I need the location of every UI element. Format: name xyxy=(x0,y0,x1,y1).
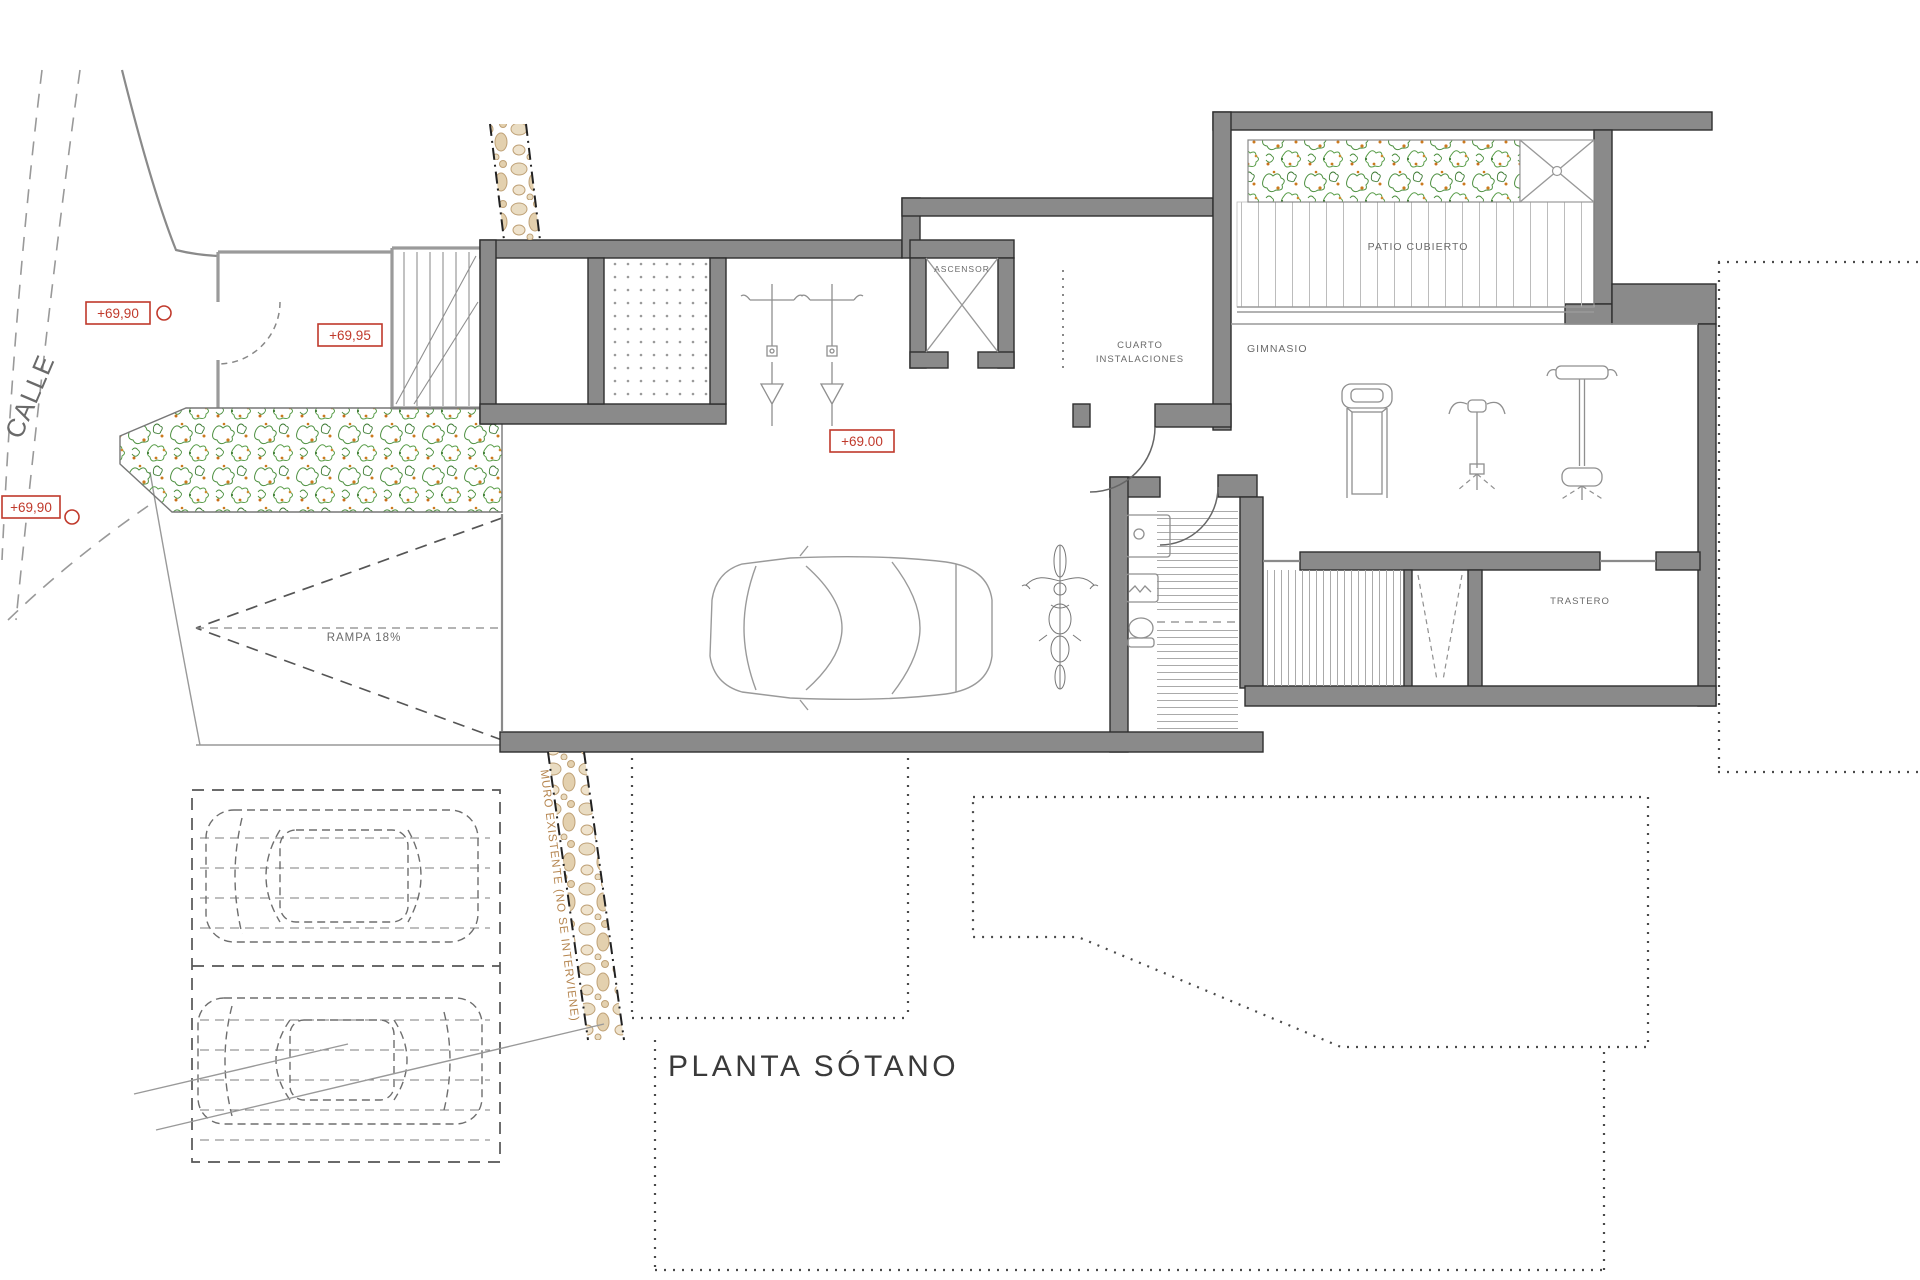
wall-pillar xyxy=(1218,475,1257,497)
wall-sauna-shower-divider xyxy=(1404,570,1412,688)
floor-plan-canvas: CALLE RAMPA 18% xyxy=(0,0,1920,1280)
bath-laundry xyxy=(1126,487,1238,730)
elevation-marker-circle xyxy=(65,510,79,524)
wall-bath-left xyxy=(1110,477,1128,752)
storage-label: TRASTERO xyxy=(1550,596,1610,607)
plan-title: PLANTA SÓTANO xyxy=(668,1050,959,1083)
elevation-street-upper: +69,90 xyxy=(86,302,171,324)
toilet xyxy=(1128,618,1154,647)
garage-ramp: RAMPA 18% xyxy=(196,514,502,745)
wall-right xyxy=(1698,324,1716,706)
elevator-wall-bottom-left xyxy=(910,352,948,368)
elevation-street-upper-value: +69,90 xyxy=(97,306,139,321)
pec-deck-machine xyxy=(1449,400,1505,490)
entry-door-swing xyxy=(218,302,280,364)
parking-rows-1 xyxy=(200,838,490,928)
street-dashed-curve-inner xyxy=(16,70,80,620)
wall-south-band-a xyxy=(1300,552,1600,570)
planter-vegetation xyxy=(120,408,502,512)
utility-label-1: CUARTO xyxy=(1117,340,1163,351)
ramp-left-edge xyxy=(150,472,200,745)
utility-room: CUARTO INSTALACIONES xyxy=(1063,270,1184,492)
wall-annex-bottom xyxy=(480,404,726,424)
gym-label: GIMNASIO xyxy=(1247,343,1308,355)
parking-rows-2 xyxy=(200,1020,490,1140)
elevator-wall-bottom-right xyxy=(978,352,1014,368)
elevation-garage-floor-value: +69.00 xyxy=(841,434,883,449)
garage xyxy=(710,284,1098,710)
motorcycle xyxy=(1022,545,1098,689)
elevation-marker-circle xyxy=(157,306,171,320)
stair-break-line xyxy=(396,256,478,404)
wall-annex-left xyxy=(480,240,496,424)
elevation-entry-landing-value: +69,95 xyxy=(329,328,371,343)
parked-sedan xyxy=(198,998,482,1124)
floor-drain xyxy=(801,284,863,426)
street-dashed-curve-outer xyxy=(2,70,42,560)
wall-utility-bottom-right xyxy=(1155,404,1231,427)
treadmill xyxy=(1342,384,1392,498)
elevation-street-lower: +69,90 xyxy=(2,496,79,524)
patio-decking xyxy=(1237,202,1594,307)
boundary-bottom-polygon xyxy=(973,797,1648,1047)
access-path-lines xyxy=(134,1024,604,1130)
wall-south-band-b xyxy=(1656,552,1700,570)
boundary-dotted-lines xyxy=(632,262,1920,1270)
shower-drain xyxy=(1418,575,1462,680)
wall-step-right xyxy=(1612,284,1716,324)
parking-outline xyxy=(192,790,500,1162)
street-dashed-link xyxy=(8,506,148,620)
patio-planter xyxy=(1248,140,1520,202)
covered-patio: PATIO CUBIERTO xyxy=(1237,140,1594,312)
gym: GIMNASIO xyxy=(1231,324,1698,500)
sauna-striped-floor xyxy=(1263,570,1404,686)
utility-label-2: INSTALACIONES xyxy=(1096,354,1184,365)
ramp-arrow xyxy=(196,518,502,740)
wall-shower-storage-divider xyxy=(1468,570,1482,688)
parked-suv xyxy=(206,810,478,942)
patio-edge-lines xyxy=(1237,307,1594,312)
street-retaining-wall xyxy=(122,70,218,256)
wall-annex-right xyxy=(710,258,726,404)
outdoor-parking xyxy=(134,790,604,1162)
wall-patio-left xyxy=(1213,112,1231,430)
lat-tower-machine xyxy=(1547,366,1617,500)
wall-annex-divider xyxy=(588,258,604,404)
ramp-label: RAMPA 18% xyxy=(327,632,402,644)
laundry-floor-gap xyxy=(1157,616,1238,630)
left-planter xyxy=(120,408,502,512)
elevator: ASCENSOR xyxy=(910,240,1014,368)
wall-garage-bottom xyxy=(500,732,1263,752)
street-label: CALLE xyxy=(0,350,61,442)
street-curves: CALLE xyxy=(0,70,218,745)
south-band: TRASTERO xyxy=(1263,561,1656,686)
wall-patio-right xyxy=(1594,130,1612,304)
wall-top-a xyxy=(480,240,902,258)
garage-car xyxy=(710,546,992,710)
wall-bath-right xyxy=(1240,497,1263,688)
entry-stairs xyxy=(392,248,480,408)
laundry-sink xyxy=(1126,574,1158,602)
wall-top-b xyxy=(902,198,1213,216)
elevation-entry-landing: +69,95 xyxy=(318,324,382,346)
skylight-x xyxy=(1520,140,1594,202)
basement-plan-svg: CALLE RAMPA 18% xyxy=(0,0,1920,1280)
elevation-street-lower-value: +69,90 xyxy=(10,500,52,515)
wall-east-bottom xyxy=(1245,686,1716,706)
patio-label: PATIO CUBIERTO xyxy=(1368,241,1469,253)
boundary-below-garage xyxy=(632,758,908,1018)
floor-drain xyxy=(741,284,803,426)
elevator-label: ASCENSOR xyxy=(934,264,990,274)
gravel-dot-room xyxy=(604,258,710,404)
elevator-wall-top xyxy=(910,240,1014,258)
wall-utility-bottom-left xyxy=(1073,404,1090,427)
elevation-garage-floor: +69.00 xyxy=(830,430,894,452)
wall-patio-top xyxy=(1213,112,1712,130)
